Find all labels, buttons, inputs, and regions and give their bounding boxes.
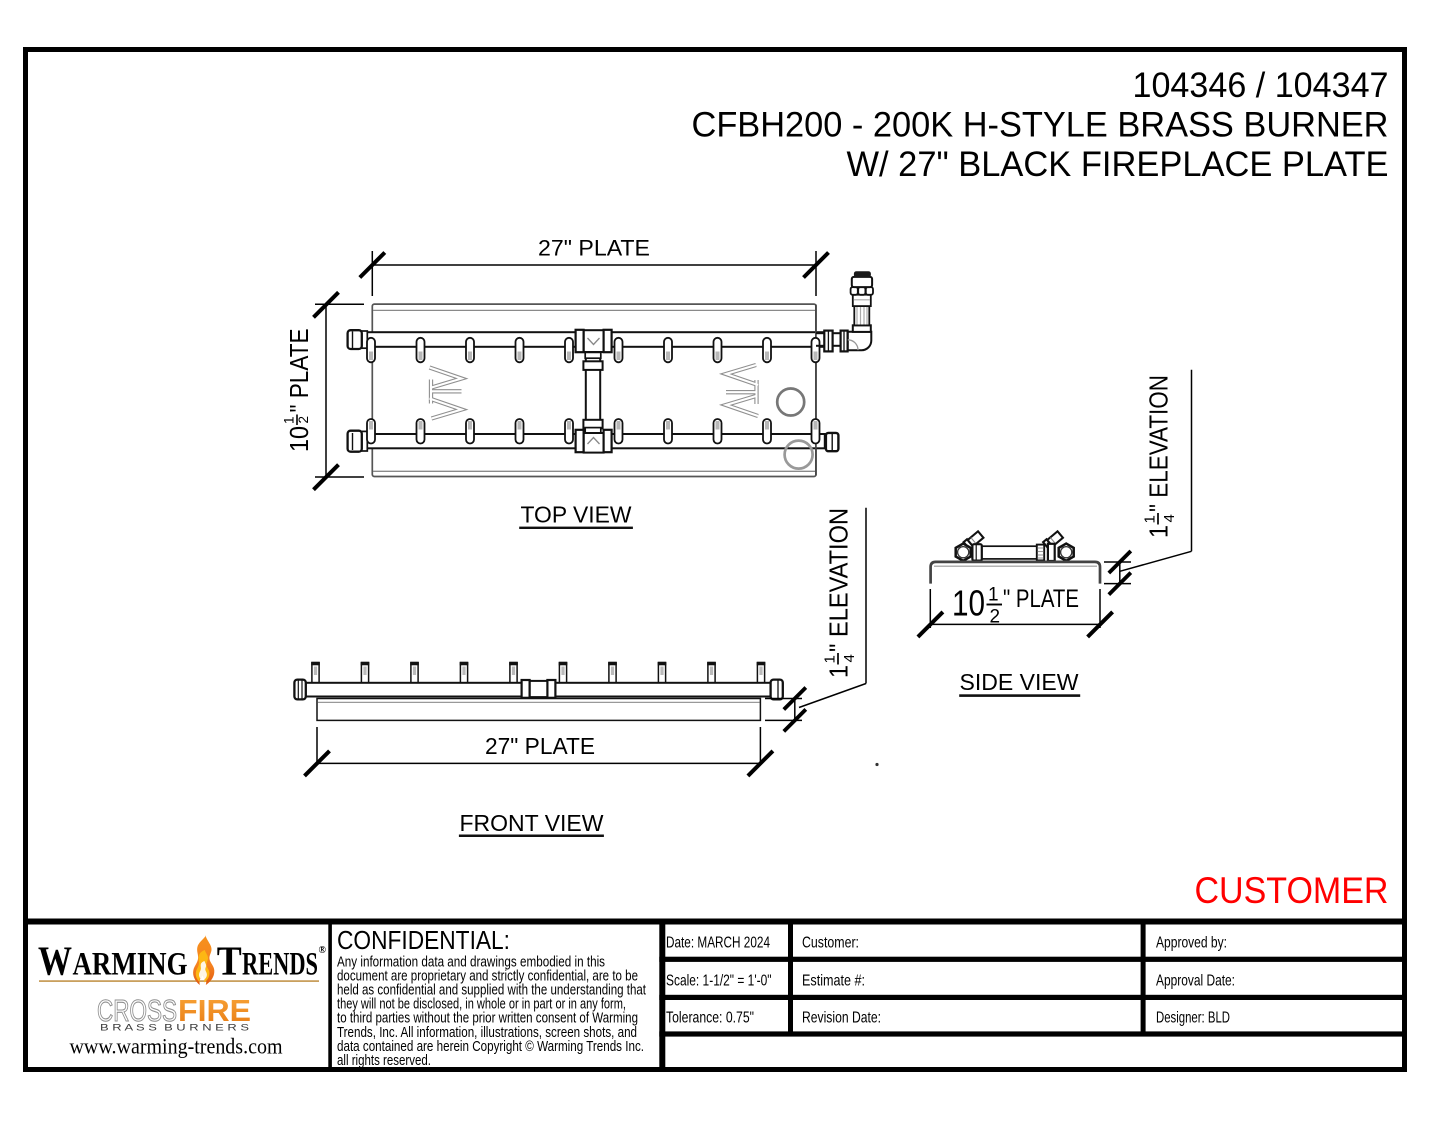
svg-text:27" PLATE: 27" PLATE — [538, 236, 650, 261]
svg-text:Designer: BLD: Designer: BLD — [1156, 1010, 1230, 1027]
svg-text:2: 2 — [296, 416, 311, 424]
svg-text:Date: MARCH 2024: Date: MARCH 2024 — [666, 935, 770, 952]
svg-text:FRONT VIEW: FRONT VIEW — [460, 810, 604, 836]
svg-text:RENDS: RENDS — [242, 947, 318, 983]
svg-text:CFBH200 - 200K H-STYLE BRASS B: CFBH200 - 200K H-STYLE BRASS BURNER — [692, 106, 1389, 145]
svg-text:2: 2 — [990, 607, 1001, 628]
svg-text:Tolerance: 0.75": Tolerance: 0.75" — [666, 1010, 754, 1027]
svg-text:Approval Date:: Approval Date: — [1156, 973, 1235, 990]
svg-text:Approved by:: Approved by: — [1156, 935, 1227, 952]
svg-text:1: 1 — [824, 665, 854, 678]
svg-text:Revision Date:: Revision Date: — [802, 1010, 881, 1027]
svg-text:1: 1 — [988, 585, 999, 606]
svg-text:Estimate #:: Estimate #: — [802, 973, 865, 990]
svg-text:TOP VIEW: TOP VIEW — [521, 502, 632, 528]
svg-text:" ELEVATION: " ELEVATION — [1144, 375, 1174, 512]
svg-text:" PLATE: " PLATE — [1003, 585, 1079, 613]
svg-text:1: 1 — [282, 416, 297, 424]
svg-text:W: W — [38, 938, 72, 984]
svg-text:" ELEVATION: " ELEVATION — [824, 508, 854, 652]
svg-text:CONFIDENTIAL:: CONFIDENTIAL: — [337, 927, 510, 955]
svg-text:CUSTOMER: CUSTOMER — [1195, 869, 1389, 911]
svg-text:" PLATE: " PLATE — [284, 329, 314, 413]
svg-text:1: 1 — [1144, 525, 1174, 538]
svg-text:1: 1 — [1142, 515, 1159, 523]
svg-text:®: ® — [319, 945, 327, 956]
svg-text:104346 / 104347: 104346 / 104347 — [1133, 66, 1389, 105]
svg-text:Scale: 1-1/2" = 1'-0": Scale: 1-1/2" = 1'-0" — [666, 973, 772, 990]
svg-text:SIDE VIEW: SIDE VIEW — [960, 669, 1079, 695]
svg-text:4: 4 — [1161, 514, 1178, 522]
svg-text:ARMING: ARMING — [73, 947, 188, 983]
svg-text:10: 10 — [284, 426, 314, 452]
svg-text:4: 4 — [841, 654, 858, 662]
svg-text:all rights reserved.: all rights reserved. — [337, 1053, 431, 1069]
svg-text:27" PLATE: 27" PLATE — [485, 733, 595, 759]
svg-text:10: 10 — [952, 583, 985, 624]
svg-text:W/ 27" BLACK FIREPLACE PLATE: W/ 27" BLACK FIREPLACE PLATE — [847, 145, 1389, 184]
svg-text:T: T — [217, 938, 242, 984]
svg-text:B R A S S B U R N E R S: B R A S S B U R N E R S — [100, 1023, 249, 1034]
svg-text:www.warming-trends.com: www.warming-trends.com — [70, 1034, 283, 1059]
svg-text:Customer:: Customer: — [802, 935, 859, 952]
svg-text:1: 1 — [822, 655, 839, 663]
